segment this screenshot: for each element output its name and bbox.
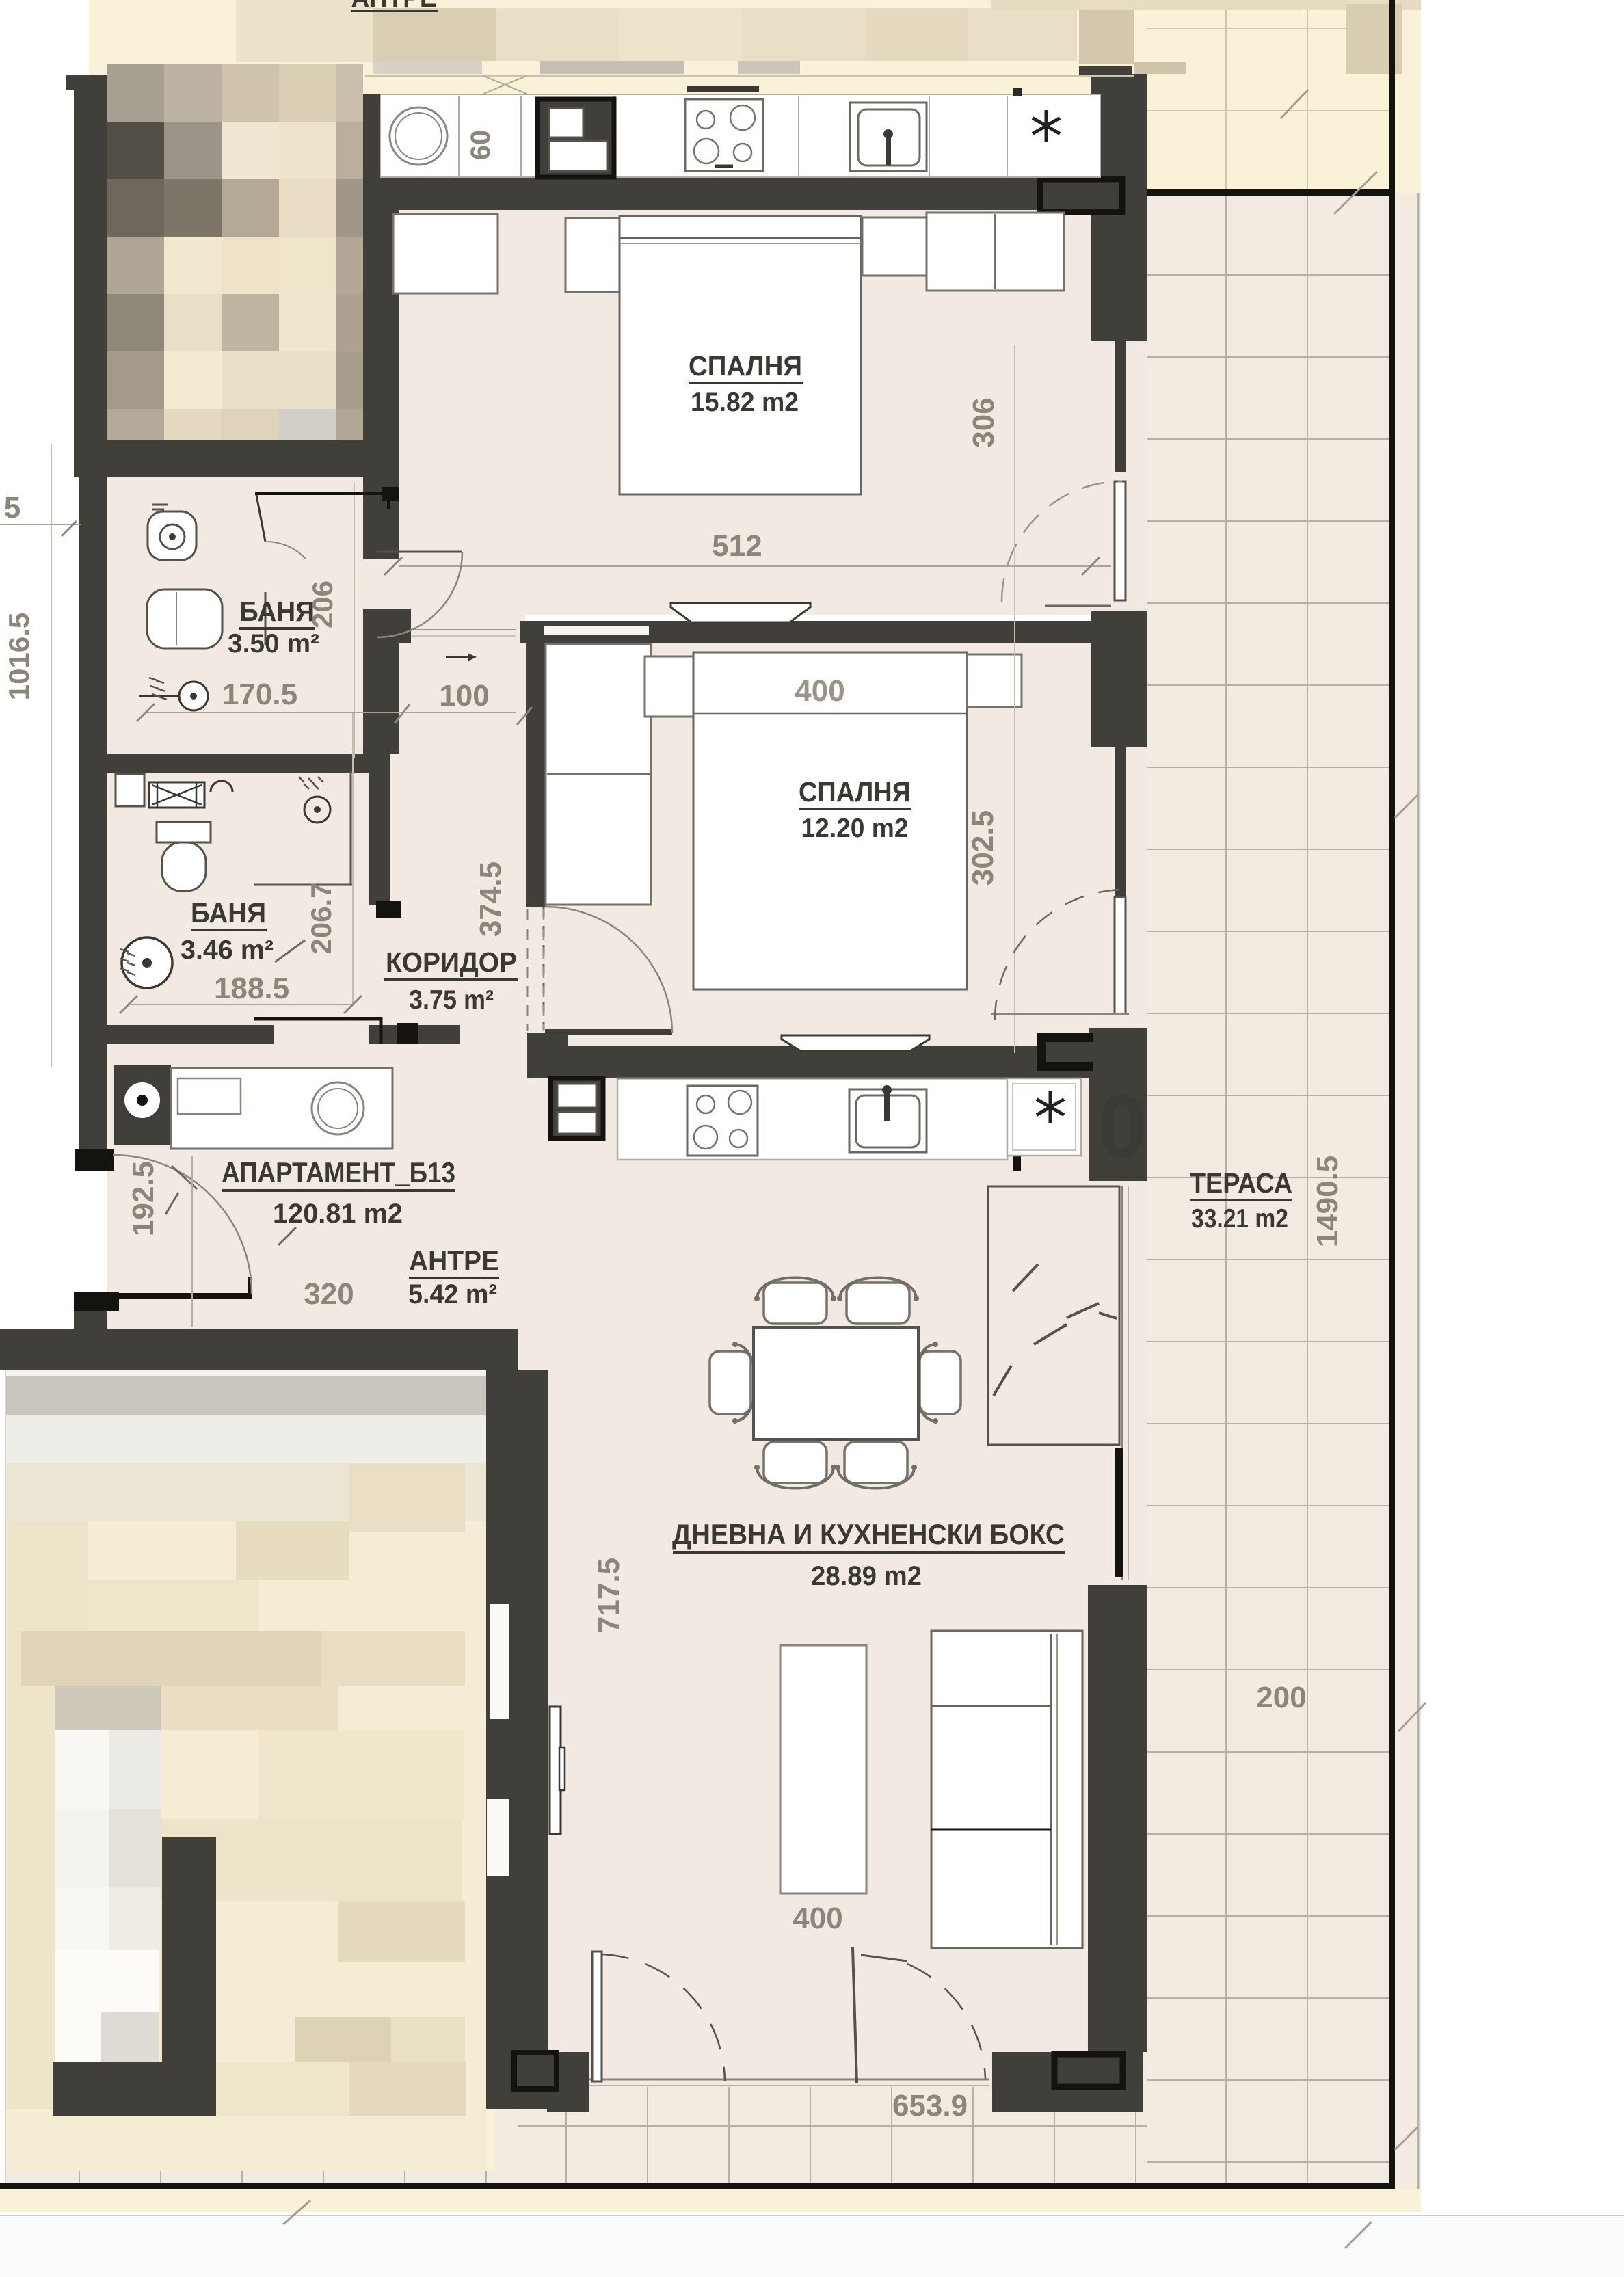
svg-text:200: 200 — [1256, 1681, 1306, 1714]
svg-text:3.46 m²: 3.46 m² — [181, 935, 274, 965]
svg-text:206: 206 — [306, 581, 338, 628]
svg-text:5: 5 — [4, 491, 21, 524]
svg-text:60: 60 — [466, 130, 496, 161]
svg-text:192.5: 192.5 — [127, 1161, 160, 1236]
svg-text:СПАЛНЯ: СПАЛНЯ — [799, 776, 911, 808]
svg-text:3.75 m²: 3.75 m² — [409, 985, 494, 1015]
svg-text:15.82 m2: 15.82 m2 — [691, 388, 799, 417]
svg-text:28.89 m2: 28.89 m2 — [811, 1561, 922, 1591]
svg-text:302.5: 302.5 — [966, 810, 1000, 885]
svg-text:1490.5: 1490.5 — [1311, 1156, 1344, 1248]
svg-text:374.5: 374.5 — [474, 862, 507, 937]
svg-text:170.5: 170.5 — [222, 678, 297, 711]
svg-text:0: 0 — [1097, 1076, 1147, 1176]
svg-text:188.5: 188.5 — [214, 972, 289, 1005]
svg-text:БАНЯ: БАНЯ — [239, 596, 315, 627]
svg-text:306: 306 — [967, 397, 1000, 447]
svg-text:ДНЕВНА И КУХНЕНСКИ БОКС: ДНЕВНА И КУХНЕНСКИ БОКС — [672, 1518, 1065, 1550]
svg-text:400: 400 — [793, 1902, 842, 1935]
svg-text:БАНЯ: БАНЯ — [191, 897, 266, 929]
svg-text:206.7: 206.7 — [305, 882, 337, 954]
svg-text:5.42 m²: 5.42 m² — [408, 1279, 497, 1309]
svg-text:АНТРЕ: АНТРЕ — [409, 1244, 499, 1277]
svg-text:ТЕРАСА: ТЕРАСА — [1190, 1167, 1292, 1199]
svg-text:320: 320 — [304, 1277, 354, 1311]
svg-text:АПАРТАМЕНТ_Б13: АПАРТАМЕНТ_Б13 — [222, 1156, 455, 1188]
svg-text:СПАЛНЯ: СПАЛНЯ — [689, 350, 802, 382]
svg-text:120.81 m2: 120.81 m2 — [273, 1199, 403, 1229]
svg-text:3.50 m²: 3.50 m² — [228, 629, 319, 658]
svg-text:717.5: 717.5 — [592, 1558, 626, 1633]
svg-text:33.21 m2: 33.21 m2 — [1191, 1204, 1288, 1234]
svg-text:12.20 m2: 12.20 m2 — [801, 814, 909, 843]
svg-text:400: 400 — [795, 674, 844, 708]
svg-text:КОРИДОР: КОРИДОР — [386, 946, 517, 978]
svg-text:1016.5: 1016.5 — [3, 613, 35, 700]
svg-text:100: 100 — [439, 679, 489, 713]
svg-text:653.9: 653.9 — [892, 2089, 968, 2122]
svg-text:512: 512 — [712, 529, 762, 563]
